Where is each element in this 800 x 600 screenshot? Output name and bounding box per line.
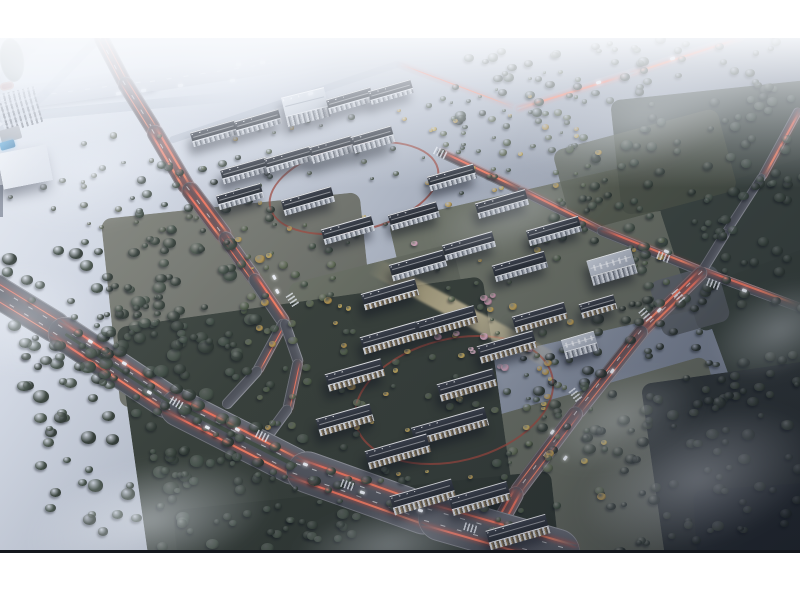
tree <box>308 476 321 486</box>
tree <box>245 254 251 259</box>
tree <box>346 241 350 244</box>
tree <box>361 159 367 164</box>
tree <box>198 246 205 252</box>
tree <box>261 299 270 306</box>
tree <box>696 329 703 334</box>
tree <box>654 299 664 307</box>
tree <box>247 293 256 300</box>
tree <box>333 321 338 325</box>
tree <box>774 193 786 202</box>
tree <box>201 304 209 310</box>
tree <box>85 466 93 473</box>
tree <box>199 388 214 400</box>
tree <box>526 441 532 445</box>
tree <box>235 155 240 159</box>
tree <box>153 300 165 310</box>
tree <box>240 302 249 309</box>
tree <box>720 232 727 238</box>
tree <box>621 316 631 324</box>
tree <box>535 76 542 82</box>
tree <box>440 96 446 101</box>
tree <box>81 239 89 245</box>
tree <box>612 47 618 52</box>
tree <box>405 428 410 432</box>
tree <box>698 298 707 305</box>
tree <box>497 48 506 55</box>
tree <box>288 422 297 429</box>
tree <box>782 135 792 143</box>
tree <box>383 222 388 226</box>
tree <box>54 412 67 422</box>
tree <box>507 280 512 284</box>
tree <box>252 458 264 468</box>
tree <box>391 384 396 388</box>
tree <box>632 248 636 251</box>
tree <box>544 360 552 366</box>
tree <box>325 487 332 492</box>
tree <box>635 301 642 307</box>
tree <box>728 187 740 196</box>
tree <box>227 431 235 437</box>
tree <box>644 282 654 290</box>
tree <box>558 70 563 74</box>
tree <box>758 237 769 246</box>
tree <box>461 143 465 146</box>
tree <box>787 95 796 102</box>
tree <box>123 368 130 374</box>
tree <box>257 395 263 400</box>
tree <box>153 282 166 292</box>
tree <box>502 71 507 75</box>
tree <box>619 306 626 311</box>
tree <box>265 214 274 221</box>
tree <box>133 305 141 311</box>
tree <box>392 359 400 365</box>
tree <box>267 174 273 179</box>
tree <box>771 38 781 46</box>
tree <box>545 81 554 88</box>
tree <box>783 255 792 262</box>
tree <box>554 382 562 389</box>
tree <box>784 176 792 182</box>
tree <box>53 246 64 254</box>
tree <box>390 146 397 151</box>
tree <box>301 281 309 287</box>
tree <box>160 402 170 410</box>
tree <box>503 388 511 394</box>
tree <box>503 139 511 145</box>
tree <box>233 137 238 141</box>
tree <box>339 388 344 392</box>
tree <box>319 124 323 127</box>
tree <box>490 293 496 298</box>
photo-bottom-edge <box>0 550 800 553</box>
tree <box>646 213 653 219</box>
tree <box>411 241 418 247</box>
tree <box>674 47 682 54</box>
tree <box>69 248 83 259</box>
tree <box>539 329 547 335</box>
tree <box>324 297 332 304</box>
tree <box>402 117 407 121</box>
tree <box>33 390 49 403</box>
tree <box>151 320 159 326</box>
tree <box>231 351 243 361</box>
tree <box>492 459 502 467</box>
tree <box>631 198 638 203</box>
tree <box>159 227 165 232</box>
tree <box>462 125 468 130</box>
tree <box>550 52 559 59</box>
tree <box>159 259 169 267</box>
tree <box>383 392 388 396</box>
tree <box>446 403 454 410</box>
tree <box>669 328 678 335</box>
tree <box>353 399 362 406</box>
tree <box>476 149 481 153</box>
tree <box>266 206 274 213</box>
tree <box>99 358 112 369</box>
tree <box>448 296 455 302</box>
tree <box>317 500 322 504</box>
tree <box>567 319 574 325</box>
tree <box>460 146 465 150</box>
tree <box>541 402 546 406</box>
tree <box>701 226 707 231</box>
tree <box>741 159 752 168</box>
tree <box>348 114 355 119</box>
tree <box>80 260 94 271</box>
tree <box>346 306 351 310</box>
tree <box>534 98 544 106</box>
tree <box>35 461 47 470</box>
tree <box>151 331 158 337</box>
tree <box>218 160 227 167</box>
tree <box>503 123 510 128</box>
tree <box>131 409 142 418</box>
tree <box>167 349 181 360</box>
tree <box>279 261 289 269</box>
tree <box>134 220 139 224</box>
tree <box>124 284 133 291</box>
tree <box>509 303 517 309</box>
tree <box>235 434 245 442</box>
tree <box>768 46 773 50</box>
tree <box>596 49 601 53</box>
tree <box>780 520 789 527</box>
tree <box>690 305 699 312</box>
tree <box>509 115 512 118</box>
tree <box>551 359 560 366</box>
tree <box>495 88 498 90</box>
tree <box>106 434 120 445</box>
tree <box>102 273 112 281</box>
tree <box>472 401 480 407</box>
tree <box>771 169 781 177</box>
tree <box>633 47 641 53</box>
tree <box>361 476 371 484</box>
tree <box>256 325 263 331</box>
tree <box>143 304 148 308</box>
tree <box>378 478 384 483</box>
tree <box>258 201 262 204</box>
tree <box>450 101 454 104</box>
tree <box>99 379 108 386</box>
tree <box>182 389 196 400</box>
tree <box>663 279 670 285</box>
tree <box>794 382 800 387</box>
tree <box>343 329 349 334</box>
tree <box>728 226 738 234</box>
tree <box>495 331 500 335</box>
tree <box>544 394 551 399</box>
tree <box>487 307 494 312</box>
tree <box>81 431 97 443</box>
tree <box>456 150 461 154</box>
tree <box>327 261 336 268</box>
tree <box>113 343 119 348</box>
tree <box>488 116 496 122</box>
tree <box>340 348 349 355</box>
tree <box>179 336 188 343</box>
tree <box>496 517 502 522</box>
page-background <box>0 0 800 600</box>
tree <box>422 156 425 158</box>
tree <box>134 333 146 343</box>
tree <box>468 475 473 479</box>
tree <box>242 367 252 375</box>
tree <box>492 136 496 139</box>
tree <box>154 311 160 316</box>
tree <box>270 469 277 475</box>
tree <box>426 103 431 107</box>
tree <box>498 89 506 96</box>
tree <box>128 248 140 257</box>
tree <box>288 337 297 344</box>
tree <box>501 474 508 480</box>
tree <box>491 167 496 171</box>
tree <box>542 369 549 375</box>
tree <box>524 373 529 377</box>
tree <box>682 41 690 47</box>
tree <box>642 261 647 265</box>
tree <box>443 142 449 147</box>
tree <box>110 375 117 381</box>
tree <box>129 330 135 335</box>
tree <box>393 171 399 176</box>
tree <box>720 215 731 224</box>
tree <box>255 255 265 263</box>
tree <box>534 353 540 358</box>
tree <box>638 57 648 65</box>
residential-building <box>220 156 270 184</box>
tree <box>139 318 151 327</box>
tree <box>341 343 347 348</box>
tree <box>740 388 747 393</box>
tree <box>637 266 647 274</box>
tree <box>480 333 488 339</box>
tree <box>266 149 272 154</box>
tree <box>751 183 759 190</box>
tree <box>724 392 733 399</box>
tree <box>461 131 466 135</box>
tree <box>237 260 246 267</box>
tree <box>174 364 186 374</box>
tree <box>291 271 300 278</box>
tree <box>17 381 30 391</box>
tree <box>133 394 141 400</box>
tree <box>288 320 296 326</box>
tree <box>526 397 531 401</box>
tree <box>562 385 567 389</box>
tree <box>543 71 546 73</box>
tree <box>493 75 503 83</box>
tree <box>306 300 314 307</box>
tree <box>722 276 731 283</box>
tree <box>64 378 77 388</box>
tree <box>287 518 294 524</box>
tree <box>241 226 248 232</box>
tree <box>235 237 241 242</box>
tree <box>397 109 401 112</box>
tree <box>479 110 486 115</box>
tree <box>766 391 774 398</box>
tree <box>750 258 759 265</box>
tree <box>575 77 581 82</box>
tree <box>644 180 653 187</box>
tree <box>425 470 429 473</box>
tree <box>703 162 713 170</box>
tree <box>43 438 54 447</box>
tree <box>265 425 271 430</box>
tree <box>303 223 307 226</box>
tree <box>184 204 193 211</box>
tree <box>753 50 760 55</box>
tree <box>704 198 710 203</box>
tree <box>488 53 498 61</box>
tree <box>190 334 197 340</box>
tree <box>102 411 115 421</box>
tree <box>186 214 193 219</box>
tree <box>218 265 229 274</box>
tree <box>154 365 169 377</box>
tree <box>738 192 748 200</box>
tree <box>200 228 206 233</box>
tree <box>491 407 499 413</box>
tree <box>283 366 289 371</box>
tree <box>326 467 336 475</box>
tree <box>537 366 543 371</box>
tree <box>611 59 619 65</box>
tree <box>507 64 517 72</box>
tree <box>269 341 276 346</box>
tree <box>34 413 46 423</box>
tree <box>286 462 295 470</box>
tree <box>446 286 451 290</box>
tree <box>63 457 71 463</box>
tree <box>88 394 98 402</box>
tree <box>754 383 765 392</box>
tree <box>634 318 644 326</box>
tree <box>692 219 698 224</box>
tree <box>429 129 433 132</box>
tree <box>94 248 103 255</box>
tree <box>625 336 635 344</box>
tree <box>655 168 664 176</box>
tree <box>225 331 233 337</box>
tree <box>325 247 333 254</box>
tree <box>232 374 240 380</box>
tree <box>520 356 526 361</box>
tree <box>501 364 509 371</box>
tree <box>381 467 387 472</box>
tree <box>644 348 652 354</box>
tree <box>656 343 664 350</box>
tree <box>582 366 594 375</box>
tree <box>645 353 653 359</box>
aerial-render-photo <box>0 38 800 553</box>
tree <box>429 354 436 360</box>
tree <box>691 344 700 351</box>
tree <box>160 247 168 253</box>
tree <box>111 283 119 289</box>
